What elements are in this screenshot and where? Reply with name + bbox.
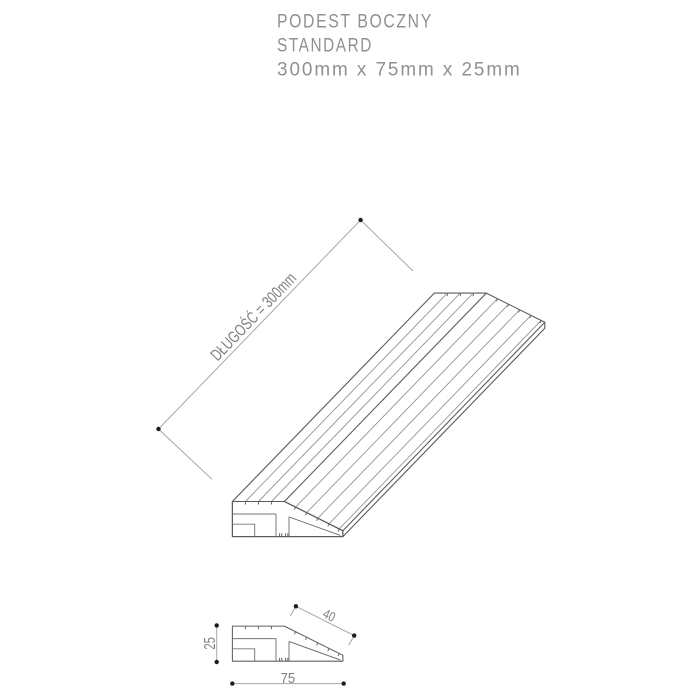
svg-text:STANDARD: STANDARD	[277, 34, 373, 56]
svg-text:300mm x 75mm x 25mm: 300mm x 75mm x 25mm	[277, 59, 522, 80]
svg-text:PODEST BOCZNY: PODEST BOCZNY	[277, 10, 433, 32]
svg-text:25: 25	[200, 637, 219, 650]
svg-text:75: 75	[281, 669, 296, 686]
